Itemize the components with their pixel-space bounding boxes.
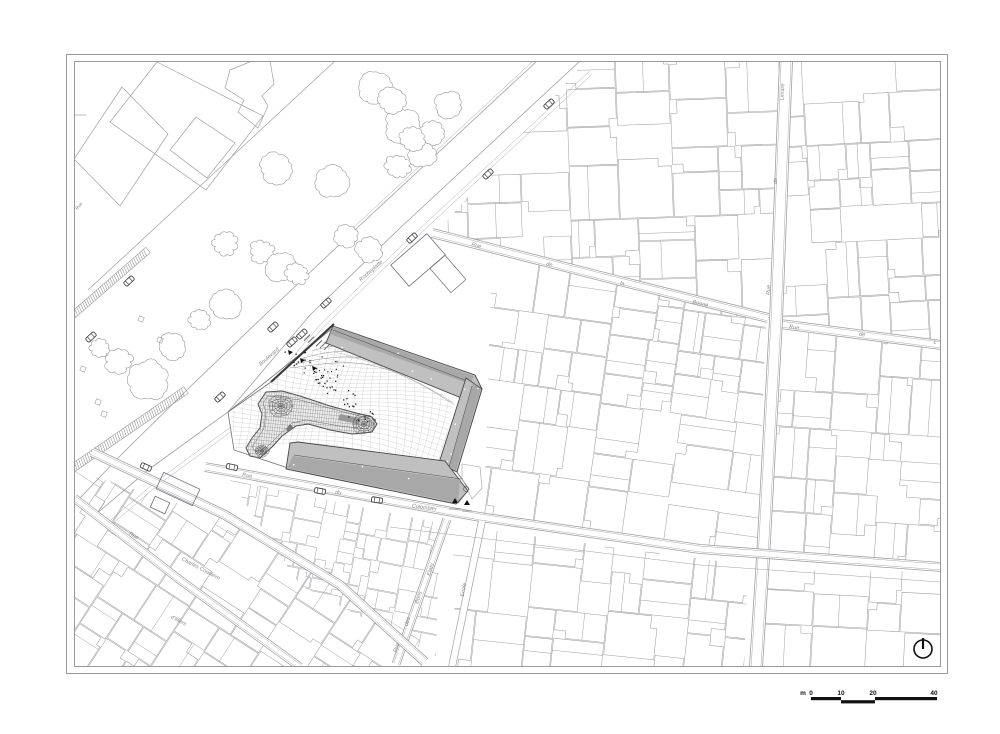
svg-text:du: du bbox=[335, 489, 342, 496]
svg-text:m: m bbox=[800, 690, 806, 697]
svg-text:20: 20 bbox=[869, 690, 877, 697]
svg-text:Limare: Limare bbox=[780, 83, 787, 100]
svg-text:Rue: Rue bbox=[766, 285, 773, 295]
svg-text:0: 0 bbox=[809, 690, 813, 697]
svg-text:de: de bbox=[773, 178, 779, 184]
svg-text:de: de bbox=[859, 332, 866, 339]
svg-text:10: 10 bbox=[837, 690, 845, 697]
svg-text:40: 40 bbox=[930, 690, 938, 697]
